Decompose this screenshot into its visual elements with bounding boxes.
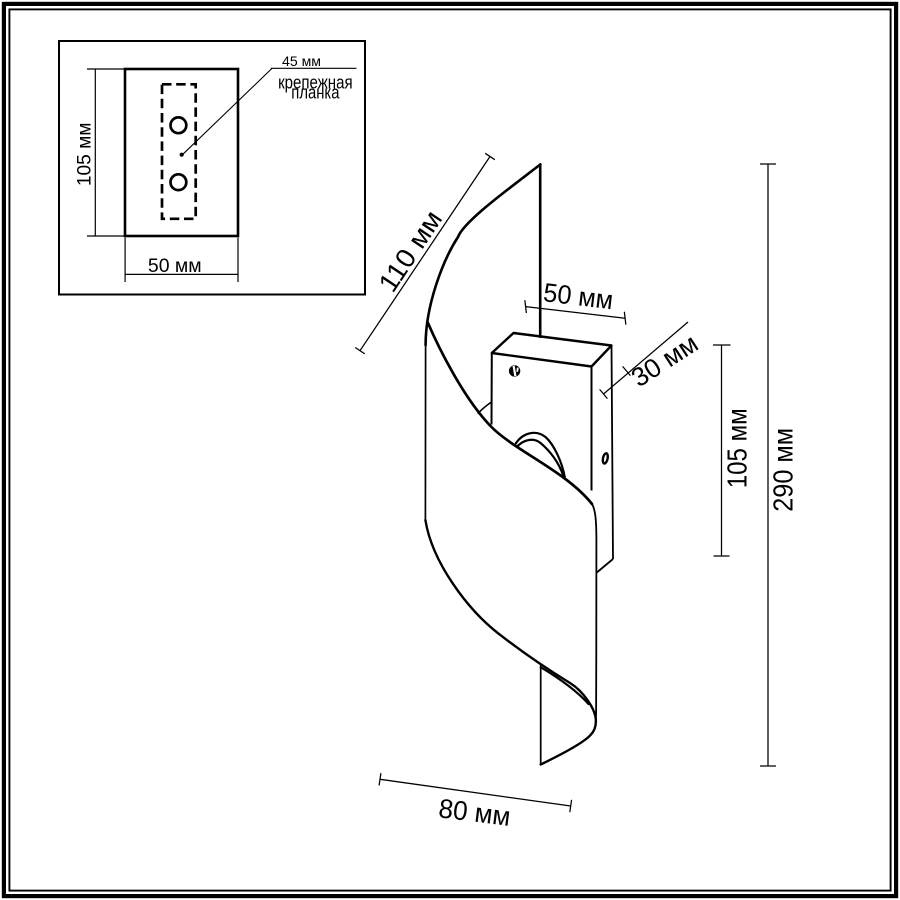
svg-text:45 мм: 45 мм	[282, 53, 321, 69]
svg-text:50 мм: 50 мм	[148, 256, 202, 277]
svg-text:планка: планка	[291, 83, 340, 103]
svg-text:105 мм: 105 мм	[75, 123, 96, 187]
svg-text:105 мм: 105 мм	[722, 408, 753, 488]
svg-text:290 мм: 290 мм	[768, 428, 799, 512]
